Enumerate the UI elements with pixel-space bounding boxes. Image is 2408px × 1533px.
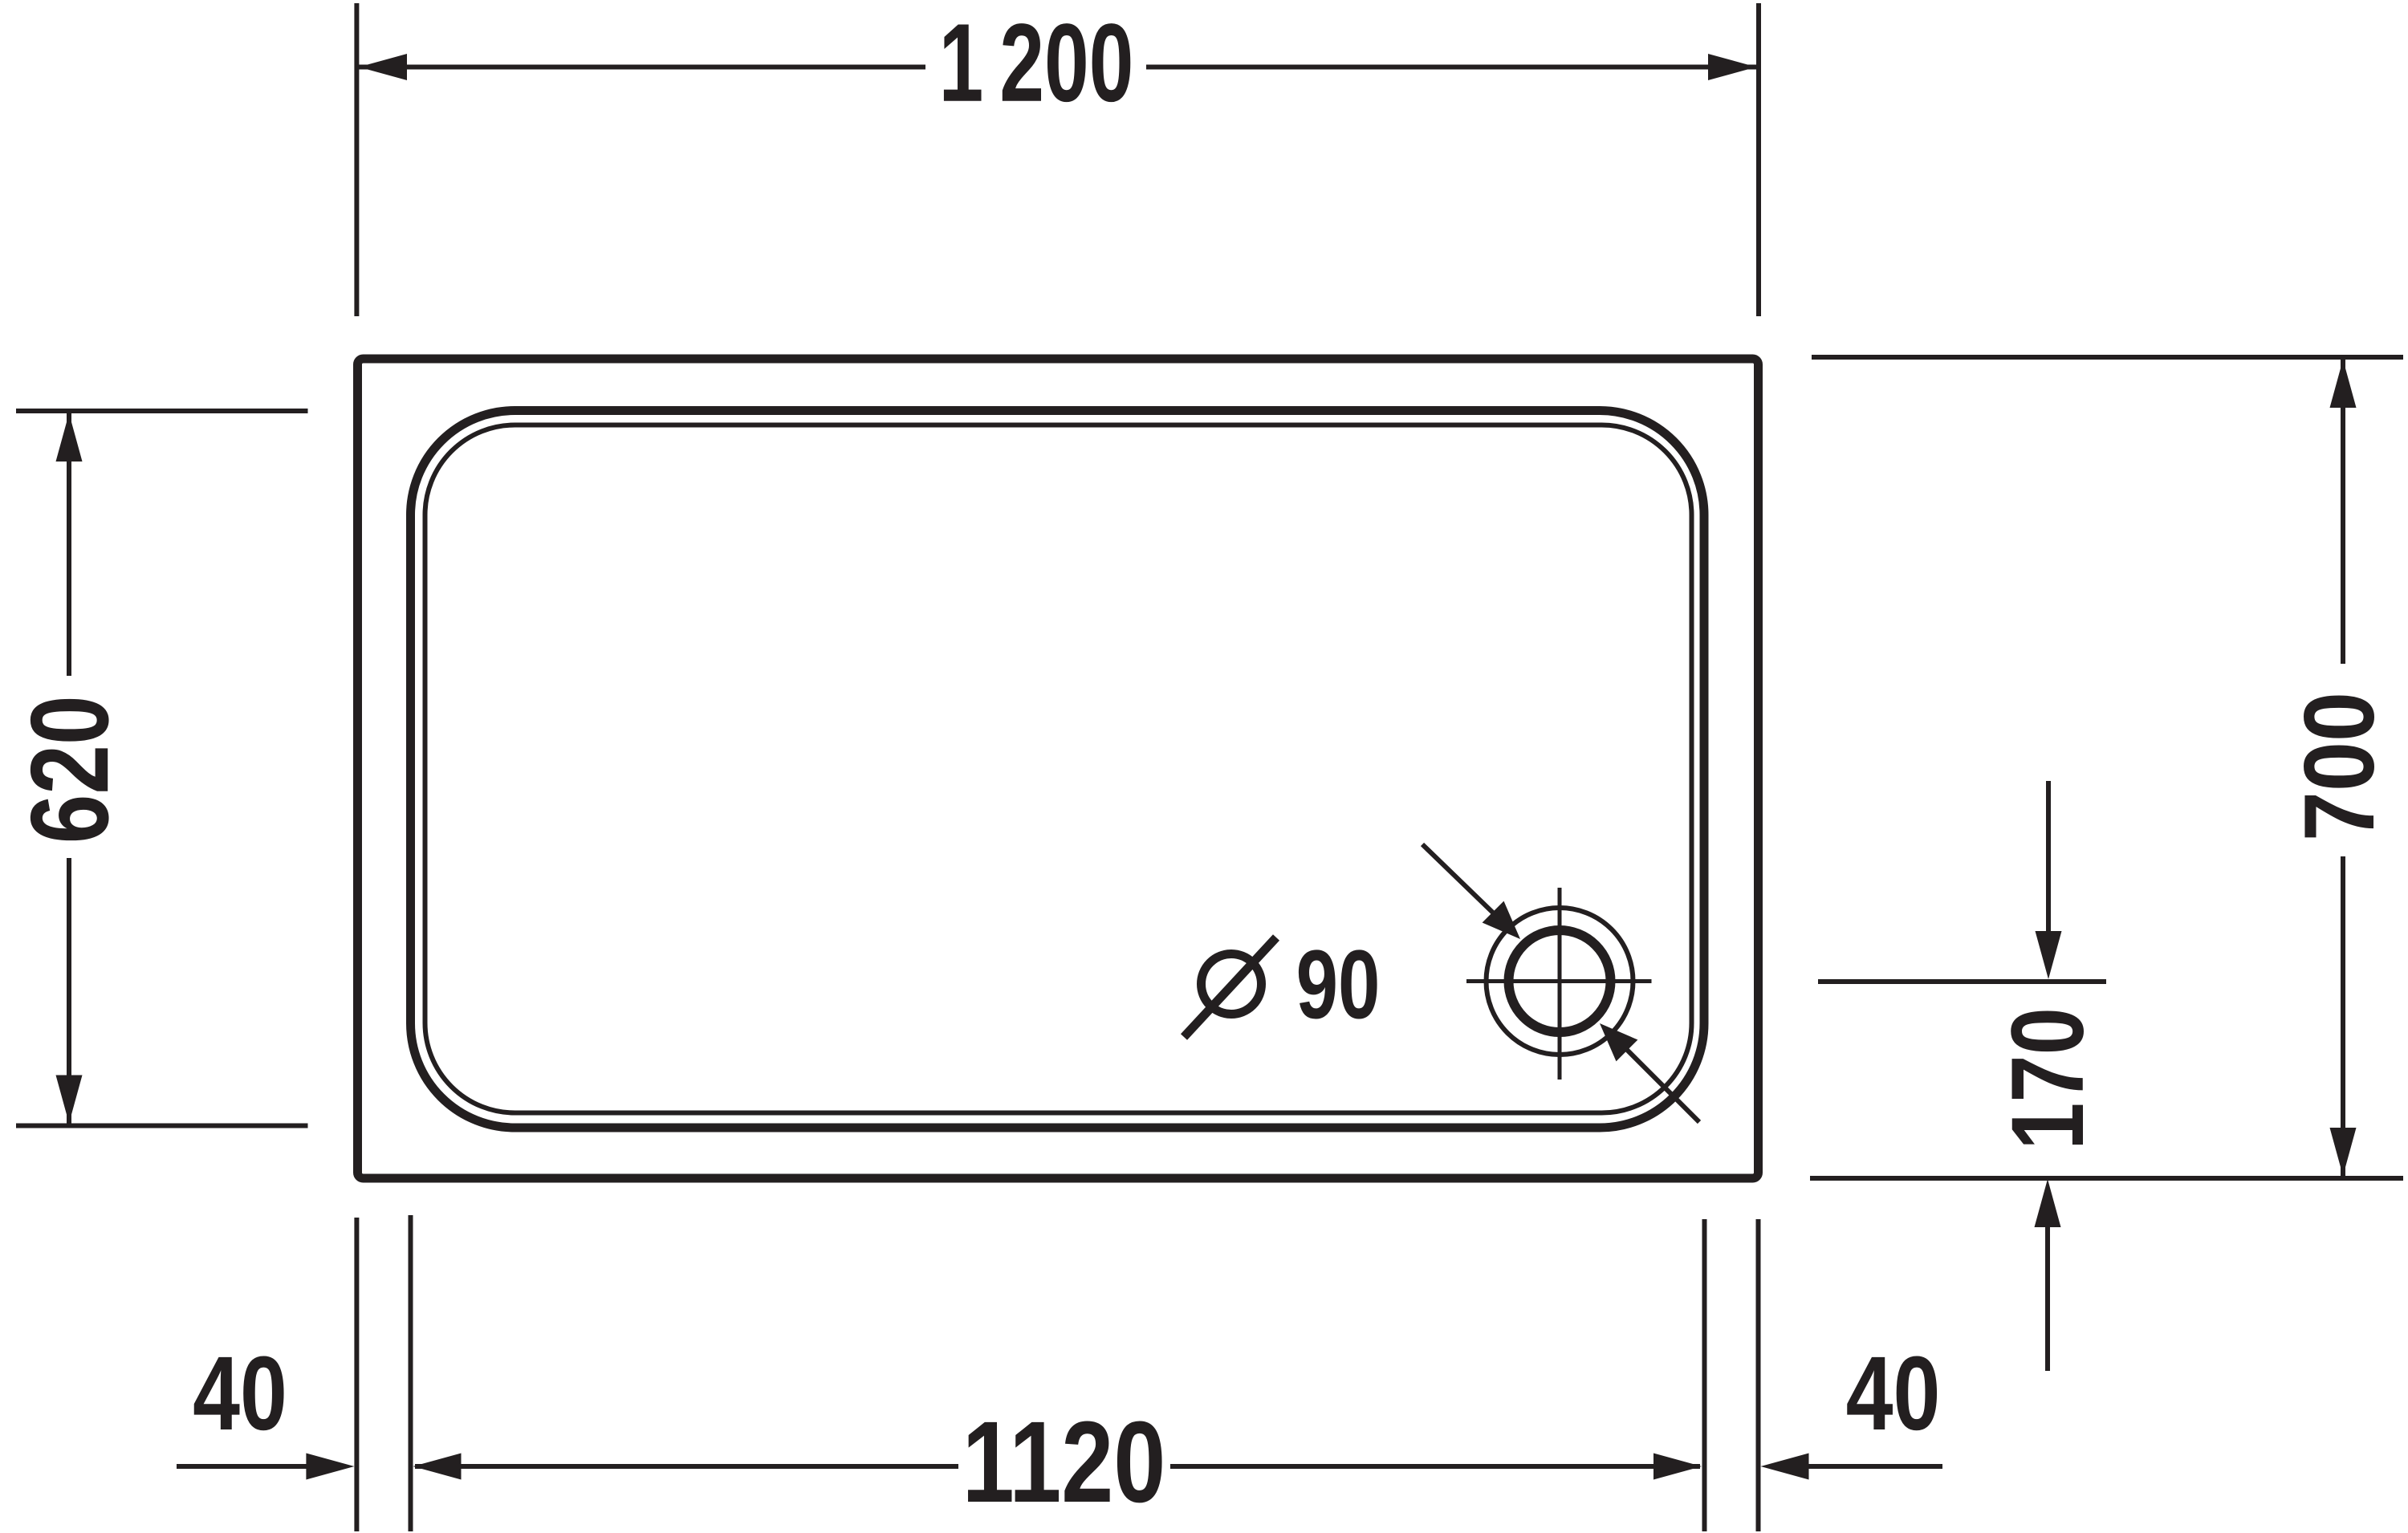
svg-text:170: 170 bbox=[1990, 1007, 2105, 1150]
svg-text:40: 40 bbox=[193, 1335, 287, 1452]
svg-text:40: 40 bbox=[1846, 1335, 1941, 1452]
svg-text:90: 90 bbox=[1296, 930, 1381, 1040]
svg-text:1120: 1120 bbox=[962, 1397, 1166, 1526]
svg-text:700: 700 bbox=[2284, 692, 2395, 841]
svg-text:620: 620 bbox=[8, 695, 132, 844]
svg-text:1 200: 1 200 bbox=[939, 1, 1134, 125]
